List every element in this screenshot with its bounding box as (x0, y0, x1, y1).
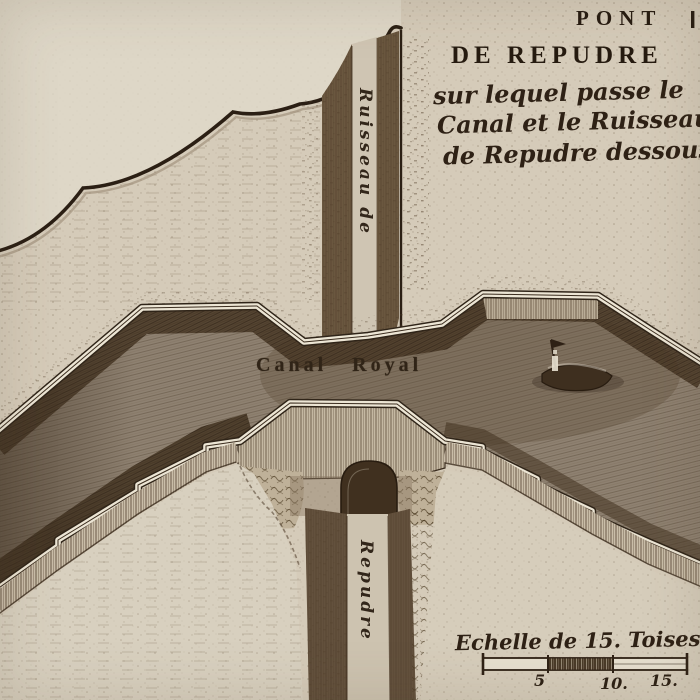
map-title-line2: DE REPUDRE (451, 42, 663, 70)
bridge-arch (341, 461, 397, 518)
antique-engraved-plan: PONT DE REPUDRE sur lequel passe le Cana… (0, 0, 700, 700)
upper-stream-label: Ruisseau de (355, 88, 375, 236)
scale-tick-15: 15. (650, 671, 678, 690)
scale-caption: Echelle de 15. Toises. (455, 626, 700, 655)
edge-fragment (691, 11, 694, 28)
lower-stream-label: Repudre (356, 540, 376, 642)
map-title-line1: PONT (576, 6, 662, 31)
scale-tick-10: 10. (600, 674, 628, 693)
scale-tick-5: 5 (534, 671, 545, 690)
canal-royal-label: Canal Royal (256, 354, 422, 377)
